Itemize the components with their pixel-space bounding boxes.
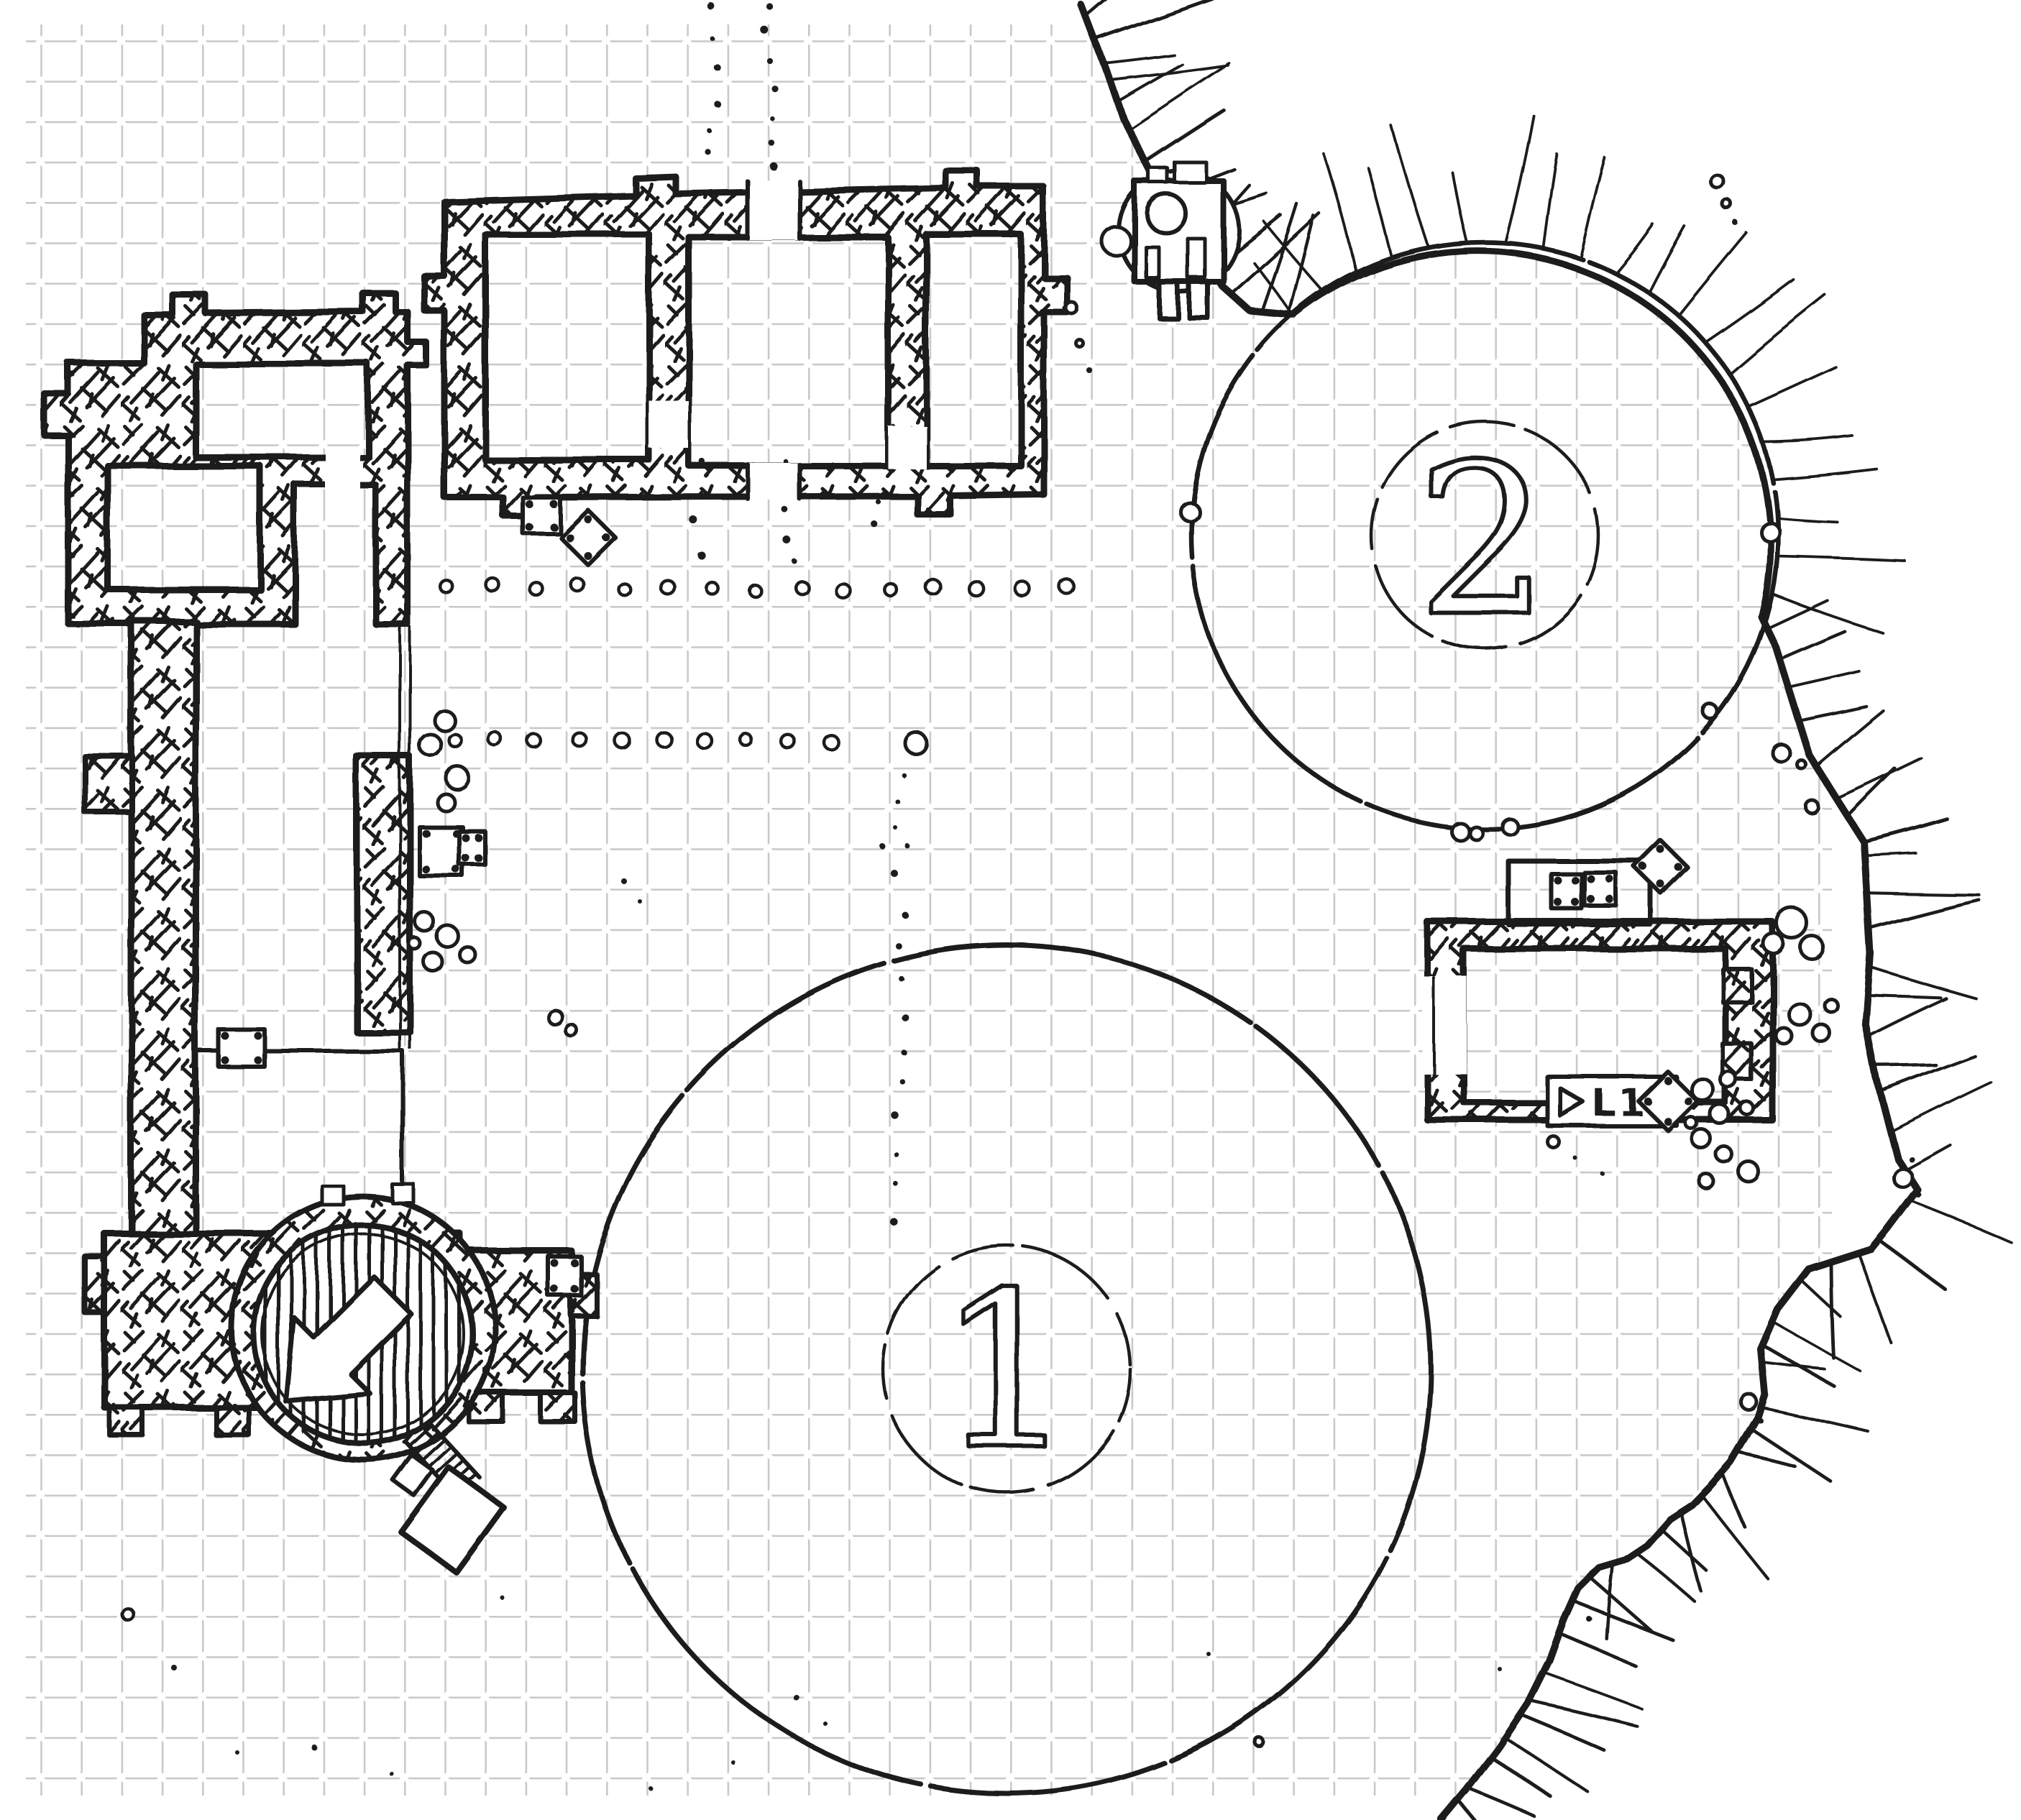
corner-dot [551, 1285, 559, 1293]
table-marker-icon [1585, 873, 1616, 906]
trail-dot [715, 101, 721, 108]
path-dot [1016, 582, 1030, 597]
trail-dot [871, 521, 878, 528]
wall-buttress [541, 1393, 575, 1422]
pebble [459, 947, 475, 962]
corner-dot [255, 1032, 262, 1040]
path-dot [782, 735, 796, 749]
trail-dot [771, 86, 778, 92]
pebble [1741, 1102, 1754, 1115]
map-page: 1 2 [0, 0, 2021, 1820]
pebble [1716, 1146, 1732, 1162]
speck [1908, 1156, 1914, 1162]
shrine-fixture [1188, 239, 1205, 277]
cliff-tick [1867, 893, 1980, 896]
trail-dot [876, 499, 881, 504]
trail-dot [783, 536, 791, 544]
corner-dot [221, 1032, 229, 1040]
corner-dot [550, 523, 558, 531]
pebble [446, 766, 469, 789]
ring-handle [393, 1185, 414, 1203]
interior-step [1723, 969, 1751, 1002]
corner-dot [1606, 896, 1614, 904]
corner-dot [475, 834, 482, 842]
pebble [1773, 745, 1790, 762]
trail-dot [770, 116, 774, 120]
path-dot [697, 733, 712, 748]
path-dot [836, 584, 851, 598]
rim-nub [1761, 523, 1779, 541]
path-dot [969, 582, 984, 596]
shrine-fixture [1146, 247, 1159, 277]
corner-dot [462, 834, 469, 842]
speck [649, 1786, 653, 1791]
corner-dot [1587, 896, 1595, 904]
trail-dot [901, 1014, 908, 1021]
trail-dot [714, 64, 720, 70]
pebble [1076, 340, 1083, 347]
path-dot [741, 735, 753, 746]
trail-dot [890, 869, 897, 876]
shrine-well [1147, 194, 1186, 233]
corner-dot [1572, 898, 1580, 906]
path-dot [1059, 579, 1073, 593]
path-dot [661, 580, 674, 594]
pebble [1066, 302, 1077, 313]
pebble [434, 710, 454, 730]
corner-dot [462, 854, 469, 862]
corner-dot [475, 854, 482, 862]
speck [1757, 1417, 1763, 1423]
pebble [1255, 1738, 1264, 1747]
wall-buttress [216, 1407, 249, 1435]
path-dot [885, 584, 897, 597]
table-marker-icon [548, 1256, 581, 1295]
speck [312, 1745, 318, 1751]
trail-dot [894, 1152, 899, 1157]
pebble [1710, 175, 1723, 188]
corner-dot [422, 829, 430, 837]
path-dot [572, 579, 585, 592]
path-dot [449, 734, 461, 746]
pebble [122, 1609, 134, 1620]
rim-nub [1181, 502, 1199, 521]
pebble [1763, 933, 1783, 953]
wall-buttress [85, 756, 132, 812]
trail-dot [760, 25, 768, 33]
pebble [436, 925, 458, 947]
trail-dot [899, 1078, 904, 1083]
mound-ear [1102, 227, 1131, 256]
speck [638, 899, 642, 904]
path-dot [528, 735, 541, 748]
corner-dot [526, 500, 533, 508]
corner-dot [571, 1259, 579, 1267]
speck [235, 1750, 239, 1755]
corner-dot [1554, 898, 1562, 906]
trail-dot [710, 36, 714, 40]
pebble [1710, 1105, 1729, 1123]
table-marker-icon [1552, 874, 1582, 909]
speck [1572, 1155, 1577, 1159]
table-marker-icon [419, 827, 462, 875]
path-dot [487, 579, 500, 592]
speck [171, 1665, 177, 1670]
pebble [1451, 822, 1468, 840]
speck [731, 1760, 735, 1765]
path-dot [706, 582, 718, 594]
corner-dot [550, 500, 558, 508]
area-1-label: 1 [938, 1246, 1076, 1497]
path-dot [620, 584, 631, 596]
pebble [1824, 998, 1837, 1011]
corner-dot [1554, 877, 1562, 885]
corner-dot [422, 865, 430, 873]
path-dot [531, 584, 544, 597]
path-dot-large [905, 732, 927, 754]
pebble [1547, 1136, 1559, 1147]
trail-dot [782, 507, 789, 513]
speck [823, 1722, 828, 1726]
trail-dot [894, 799, 899, 804]
trail-dot [895, 942, 902, 949]
trail-dot [891, 1111, 899, 1119]
trail-dot [902, 773, 906, 777]
pebble [419, 734, 441, 755]
table-marker-icon [459, 831, 485, 864]
trail-dot [766, 2, 772, 9]
pebble [415, 912, 434, 931]
path-dot [795, 581, 808, 594]
pebble [1738, 1162, 1759, 1182]
speck [1733, 220, 1738, 226]
pebble [1692, 1079, 1713, 1100]
pebble [1893, 1168, 1912, 1187]
speck [1586, 1616, 1592, 1622]
trail-dot [901, 911, 907, 918]
speck [1600, 1171, 1604, 1175]
trail-dot [707, 2, 714, 9]
pebble [1703, 704, 1718, 719]
pebble [566, 1025, 577, 1037]
pebble [1720, 1072, 1736, 1088]
mid-wall-chunk [357, 756, 410, 1032]
corner-dot [526, 523, 533, 531]
trail-dot [698, 552, 706, 560]
pebble [1700, 1175, 1714, 1189]
pebble [1775, 1027, 1791, 1043]
path-dot [440, 580, 453, 593]
pebble [1469, 826, 1482, 839]
ring-handle [322, 1186, 344, 1205]
table-marker-icon [523, 497, 560, 533]
pebble [423, 952, 442, 971]
shrine-roof-bump [1175, 162, 1206, 183]
pebble [1685, 1117, 1697, 1129]
rim-nub [1502, 819, 1518, 835]
dungeon-map: 1 2 [0, 0, 2021, 1820]
trail-dot [905, 843, 910, 848]
wall-buttress [109, 1407, 142, 1435]
speck [880, 844, 886, 850]
pebble [1812, 1024, 1829, 1041]
pebble [1805, 800, 1818, 813]
door-gap [325, 451, 359, 489]
pebble [1788, 1003, 1810, 1024]
speck [894, 826, 898, 830]
trail-dot [898, 975, 904, 980]
pebble [437, 794, 454, 811]
cliff-tick [1874, 1065, 1936, 1065]
corner-dot [551, 1259, 559, 1267]
trail-dot [707, 128, 712, 133]
trail-dot [900, 1049, 906, 1054]
trail-dot [689, 515, 697, 523]
shrine-leg [1189, 282, 1208, 318]
speck [1915, 1192, 1921, 1198]
path-dot [824, 735, 838, 750]
corner-dot [1587, 875, 1595, 883]
path-dot [489, 733, 502, 746]
trail-dot [890, 1218, 898, 1226]
trail-dot [768, 139, 774, 145]
trail-dot [769, 162, 776, 170]
speck [390, 1772, 394, 1776]
speck [621, 878, 627, 884]
speck [1206, 1651, 1210, 1655]
shrine-leg [1159, 282, 1178, 318]
speck [501, 1596, 505, 1601]
pebble [1800, 936, 1823, 959]
speck [1086, 367, 1092, 373]
trail-dot [792, 559, 797, 564]
trail-dot [767, 58, 773, 64]
door-block-icon [219, 1029, 265, 1067]
pebble [408, 937, 420, 949]
path-dot [657, 732, 672, 747]
pebble [1723, 200, 1731, 208]
corner-dot [571, 1285, 579, 1293]
pebble [1797, 760, 1806, 769]
path-dot [615, 733, 630, 748]
pebble [1777, 908, 1807, 938]
trail-dot [893, 1181, 898, 1186]
speck [1498, 1667, 1502, 1671]
corner-dot [452, 865, 460, 873]
area-2-label: 2 [1416, 420, 1549, 662]
path-dot [926, 580, 941, 595]
colonnade-opening [1422, 976, 1467, 1074]
pebble [1692, 1129, 1710, 1148]
corner-dot [1572, 877, 1580, 885]
pebble [1741, 1394, 1756, 1410]
path-dot [749, 585, 761, 597]
corner-dot [1606, 875, 1614, 883]
corner-dot [221, 1057, 229, 1065]
pebble [548, 1010, 562, 1024]
trail-dot [705, 149, 710, 155]
shrine-roof-bump [1149, 168, 1168, 183]
corner-dot [255, 1057, 262, 1065]
speck [794, 1695, 799, 1701]
path-dot [573, 733, 587, 747]
